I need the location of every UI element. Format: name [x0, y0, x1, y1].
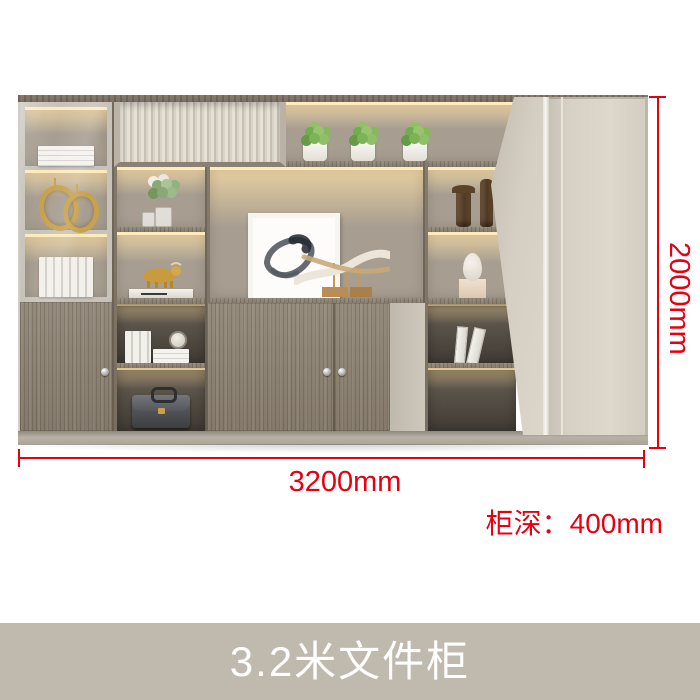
- caption-text: 3.2米文件柜: [0, 623, 700, 700]
- cubby-vase: [117, 167, 205, 227]
- product-page: 2000mm 3200mm 柜深：400mm 3.2米文件柜: [0, 0, 700, 700]
- floor-shadow: [10, 444, 658, 453]
- cubby-briefcase: [117, 368, 205, 431]
- height-dimension-tick-top: [649, 96, 666, 98]
- side-panel-door: [390, 303, 425, 431]
- decor-gold-bull-figurine: [135, 261, 187, 289]
- briefcase-clasp: [158, 408, 165, 414]
- decor-briefcase: [132, 395, 190, 428]
- decor-plant-pot: [403, 141, 427, 161]
- glass-reflection: [20, 102, 112, 302]
- height-dimension-line: [657, 97, 659, 449]
- door-reflection-line: [561, 97, 563, 435]
- left-wood-door: [20, 302, 112, 431]
- bronze-vase-top: [452, 185, 475, 193]
- door-knob: [101, 368, 109, 376]
- decor-bronze-vase: [480, 179, 493, 227]
- tambour-shutter-door: [114, 102, 286, 167]
- decor-flower-bouquet: [157, 187, 168, 198]
- decor-leaning-book: [466, 327, 486, 366]
- cubby-empty: [428, 368, 516, 431]
- decor-succulent: [409, 133, 420, 144]
- shelf-board: [112, 363, 209, 368]
- decor-bronze-vase: [456, 189, 471, 227]
- height-dimension-label: 2000mm: [662, 242, 695, 352]
- decor-clock: [169, 331, 187, 349]
- door-knob: [323, 368, 331, 376]
- depth-dimension-label: 柜深：400mm: [486, 502, 663, 542]
- center-double-door: [207, 303, 390, 431]
- width-dimension-line: [19, 457, 644, 459]
- decor-succulent: [309, 133, 320, 144]
- shelf-board: [112, 227, 209, 232]
- shelf-board: [423, 363, 516, 368]
- cubby-bull: [117, 232, 205, 298]
- decor-glass-vase: [155, 207, 172, 227]
- door-knob: [338, 368, 346, 376]
- cubby-leaning-books: [428, 304, 516, 363]
- caption-bar: 3.2米文件柜: [0, 623, 700, 700]
- width-dimension-label: 3200mm: [250, 466, 440, 499]
- center-display: [210, 167, 423, 298]
- decor-stone-head: [463, 253, 482, 281]
- width-dimension-tick-right: [643, 450, 645, 468]
- door-gap: [333, 303, 335, 431]
- briefcase-handle: [151, 387, 177, 403]
- decor-book-title-strip: [141, 293, 167, 295]
- decor-book-stack: [153, 349, 189, 363]
- glass-display-tower: [20, 102, 112, 302]
- cubby-books-clock: [117, 304, 205, 363]
- decor-vertical-books: [125, 331, 151, 363]
- cabinet-right-edge: [645, 97, 648, 435]
- decor-glass-cup: [142, 212, 155, 227]
- decor-plant-pot: [351, 141, 375, 161]
- decor-succulent: [357, 133, 368, 144]
- sliding-door-rear: [549, 97, 647, 435]
- shelf-plants: [277, 102, 530, 161]
- decor-pedestal-box: [459, 279, 486, 298]
- height-dimension-tick-bottom: [649, 447, 666, 449]
- decor-plant-pot: [303, 141, 327, 161]
- decor-horn-sculpture: [294, 233, 390, 298]
- width-dimension-tick-left: [18, 449, 20, 467]
